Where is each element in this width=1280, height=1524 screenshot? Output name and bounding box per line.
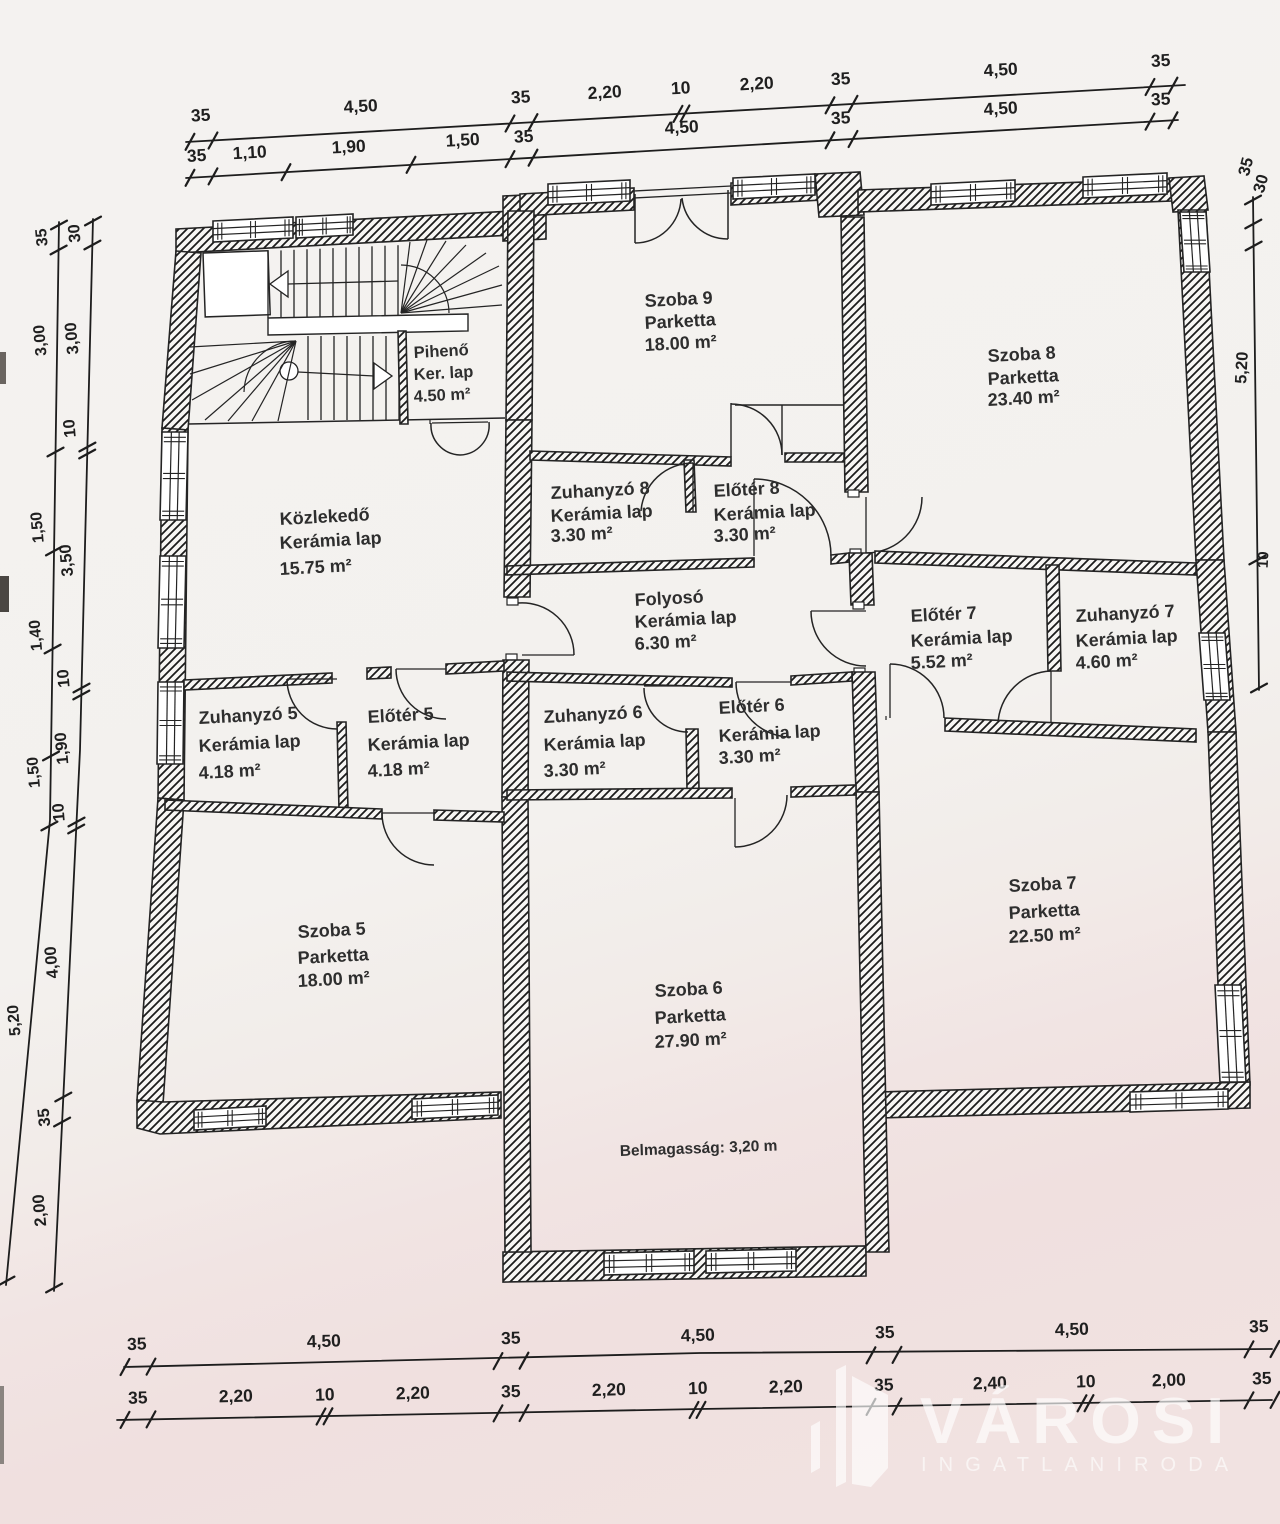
svg-text:5,20: 5,20 [5,1004,25,1037]
svg-text:4.50 m²: 4.50 m² [413,385,471,406]
svg-text:VÁROSI: VÁROSI [920,1384,1235,1457]
svg-text:10: 10 [54,669,74,689]
svg-text:10: 10 [60,419,80,439]
svg-text:Szoba 5: Szoba 5 [297,918,366,942]
svg-text:5,20: 5,20 [1232,351,1252,384]
svg-text:1,50: 1,50 [28,511,48,544]
svg-text:Pihenő: Pihenő [413,341,469,362]
svg-text:3.30 m²: 3.30 m² [550,523,613,546]
svg-text:35: 35 [830,107,851,128]
svg-text:4,50: 4,50 [1054,1319,1089,1340]
svg-text:1,90: 1,90 [52,732,73,766]
svg-text:4,50: 4,50 [983,59,1018,81]
svg-text:10: 10 [315,1384,335,1405]
svg-text:35: 35 [33,228,51,247]
svg-text:35: 35 [128,1387,148,1408]
svg-text:18.00 m²: 18.00 m² [297,967,370,991]
svg-text:2,20: 2,20 [218,1385,253,1406]
svg-text:4,50: 4,50 [343,95,378,117]
svg-text:35: 35 [35,1108,55,1128]
svg-text:35: 35 [190,105,211,126]
svg-text:35: 35 [875,1322,895,1343]
svg-text:Szoba 8: Szoba 8 [987,342,1056,366]
svg-text:3,00: 3,00 [31,324,51,357]
svg-text:INGATLANIRODA: INGATLANIRODA [921,1454,1240,1476]
svg-text:30: 30 [65,224,85,244]
svg-text:4.18 m²: 4.18 m² [198,760,261,783]
svg-text:4.60 m²: 4.60 m² [1075,650,1138,673]
svg-text:23.40 m²: 23.40 m² [987,386,1060,410]
svg-text:1,50: 1,50 [24,756,44,789]
svg-text:1,10: 1,10 [232,141,267,163]
svg-text:2,20: 2,20 [739,72,774,94]
svg-text:Folyosó: Folyosó [634,586,704,610]
svg-text:35: 35 [1249,1316,1269,1337]
svg-text:35: 35 [1252,1368,1272,1389]
svg-text:Előtér 5: Előtér 5 [367,704,434,727]
svg-text:4,00: 4,00 [41,946,62,980]
svg-text:35: 35 [1150,50,1171,71]
svg-text:2,20: 2,20 [395,1382,430,1403]
svg-text:Parketta: Parketta [1008,899,1081,923]
svg-text:4.18 m²: 4.18 m² [367,758,430,781]
svg-text:Előtér 7: Előtér 7 [910,603,977,626]
svg-text:4,50: 4,50 [983,97,1018,119]
svg-text:3.30 m²: 3.30 m² [718,745,781,768]
svg-text:Előtér 8: Előtér 8 [713,478,780,501]
svg-text:22.50 m²: 22.50 m² [1008,923,1081,947]
svg-text:Szoba 7: Szoba 7 [1008,872,1077,896]
svg-text:15.75 m²: 15.75 m² [279,555,352,579]
svg-text:Szoba 9: Szoba 9 [644,287,713,311]
svg-text:35: 35 [510,86,531,107]
svg-text:10: 10 [688,1378,708,1399]
svg-text:2,20: 2,20 [591,1379,626,1400]
svg-text:35: 35 [501,1328,521,1349]
svg-text:35: 35 [501,1381,521,1402]
svg-text:35: 35 [127,1333,147,1354]
svg-text:18.00 m²: 18.00 m² [644,331,717,355]
svg-text:10: 10 [1255,551,1273,569]
svg-text:3.30 m²: 3.30 m² [543,758,606,781]
svg-text:35: 35 [513,126,534,147]
svg-text:4,50: 4,50 [664,116,699,138]
svg-text:Ker. lap: Ker. lap [413,363,473,384]
svg-text:6.30 m²: 6.30 m² [634,631,697,654]
svg-text:2,00: 2,00 [30,1194,51,1228]
svg-text:Parketta: Parketta [987,365,1060,389]
svg-text:35: 35 [1150,88,1171,109]
svg-text:Parketta: Parketta [644,309,717,333]
svg-text:35: 35 [830,68,851,89]
svg-text:10: 10 [49,803,69,823]
svg-text:35: 35 [186,145,207,166]
svg-text:1,40: 1,40 [26,619,46,652]
svg-text:5.52 m²: 5.52 m² [910,650,973,673]
svg-text:4,50: 4,50 [680,1324,715,1345]
svg-text:4,50: 4,50 [306,1330,341,1351]
svg-text:Szoba 6: Szoba 6 [654,977,723,1001]
svg-text:10: 10 [670,77,691,98]
svg-text:27.90 m²: 27.90 m² [654,1028,727,1052]
svg-text:2,20: 2,20 [587,81,622,103]
svg-text:3,00: 3,00 [62,322,83,356]
svg-text:Előtér 6: Előtér 6 [718,695,785,718]
svg-text:2,20: 2,20 [768,1376,803,1397]
svg-text:Parketta: Parketta [297,944,370,968]
svg-text:1,50: 1,50 [445,129,480,151]
svg-text:1,90: 1,90 [331,136,366,158]
svg-text:3.30 m²: 3.30 m² [713,523,776,546]
svg-text:Parketta: Parketta [654,1004,727,1028]
